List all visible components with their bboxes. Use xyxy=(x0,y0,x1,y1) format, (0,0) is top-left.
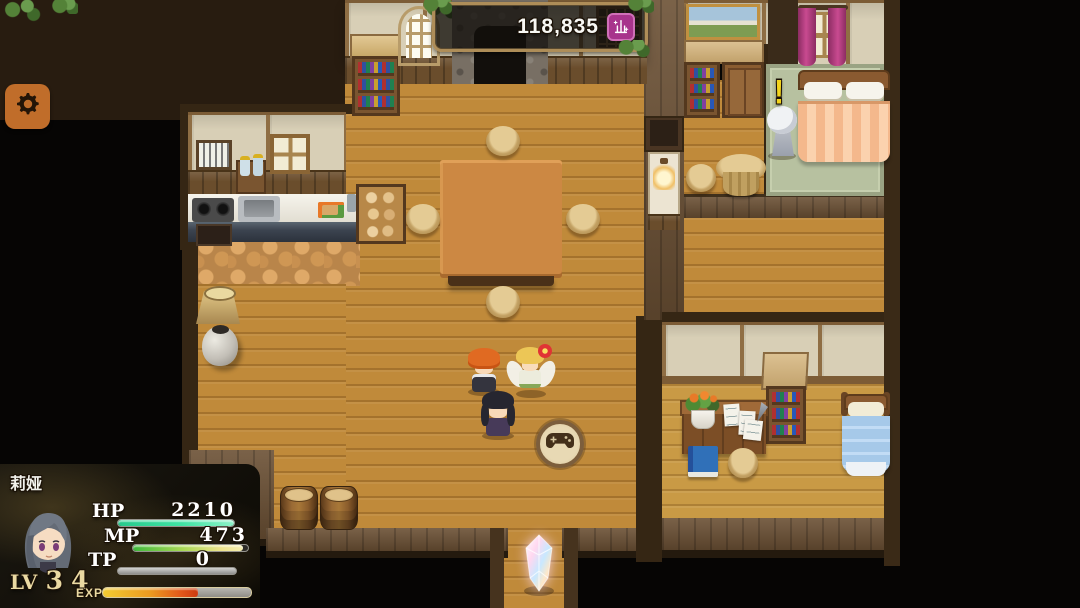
npc-alert-exclamation: ! xyxy=(774,73,784,112)
corridor-wall-right xyxy=(564,528,578,608)
currency-value: 118,835 xyxy=(517,15,599,39)
painting-landscape xyxy=(686,4,760,40)
bookshelf-topleft xyxy=(352,56,400,116)
ceramic-pot-mouth xyxy=(212,325,229,334)
jar xyxy=(240,156,250,176)
bar-leaf-decoration xyxy=(422,0,452,16)
gamepad-button[interactable] xyxy=(536,420,584,468)
bookshelf-living xyxy=(684,62,720,118)
fairy-flower xyxy=(538,344,552,358)
floor-right-mid xyxy=(684,216,884,316)
fairy-body xyxy=(519,370,541,388)
jar xyxy=(253,154,263,176)
corner-vine xyxy=(52,0,78,14)
lantern-icon xyxy=(653,162,675,190)
tp-bar xyxy=(117,567,237,575)
floor-left-border xyxy=(182,240,198,456)
wall-bottom-left xyxy=(266,528,508,558)
oven xyxy=(196,224,232,246)
wall-band-right-mid xyxy=(684,194,884,218)
corridor-wall-left xyxy=(490,528,504,608)
grain-sack-top xyxy=(204,286,236,301)
stove-burner xyxy=(216,202,230,216)
stool xyxy=(406,204,440,234)
barrel-top xyxy=(324,488,354,502)
bed2-pillow xyxy=(848,402,884,417)
guild-shop-icon xyxy=(607,13,635,41)
barrel xyxy=(280,486,318,530)
bookshelf-study xyxy=(766,386,806,444)
game-screen: ! xyxy=(0,0,1080,608)
desk-paper xyxy=(743,419,763,441)
flower-blooms xyxy=(688,390,718,406)
dining-table xyxy=(440,160,562,278)
curtain-right xyxy=(828,8,846,66)
round-table-skirt xyxy=(723,172,759,196)
bread-shelf xyxy=(356,184,406,244)
cutting-board xyxy=(318,202,344,218)
character-name: 莉娅 xyxy=(10,470,42,494)
character-portrait xyxy=(18,502,78,574)
corner-vine xyxy=(0,0,42,24)
gear-icon xyxy=(13,89,43,124)
kitchen-window xyxy=(270,134,310,174)
stool xyxy=(686,164,716,192)
bookshelf-top-slab xyxy=(350,34,400,58)
drying-rack xyxy=(196,140,232,170)
level-label: LV xyxy=(10,570,37,594)
flower-pot xyxy=(691,410,715,429)
mp-value: 473 xyxy=(130,524,248,546)
status-panel: 莉娅 HP 2210 MP 473 TP 0 xyxy=(0,464,260,608)
lamp-pillar-base xyxy=(648,214,680,230)
curtain-left xyxy=(798,8,816,66)
stool xyxy=(486,126,520,156)
blue-book xyxy=(688,446,718,477)
exp-bar xyxy=(102,587,252,598)
bar-leaf-decoration xyxy=(628,0,654,13)
lamp-pillar-cap-inner xyxy=(650,120,678,146)
exterior-dark-corner xyxy=(0,0,347,120)
settings-button[interactable] xyxy=(5,84,50,129)
npc-hair xyxy=(468,348,500,366)
bed-pillow xyxy=(804,82,842,99)
stool xyxy=(566,204,600,234)
wall-chute xyxy=(761,352,809,390)
exp-label: EXP xyxy=(76,586,103,600)
cabinet-door xyxy=(744,68,762,116)
bed2-sheet xyxy=(846,462,886,476)
stove-burner xyxy=(197,202,211,216)
border-main-right xyxy=(636,316,662,562)
bed-pillow xyxy=(846,82,884,99)
barrel-top xyxy=(284,488,314,502)
bedroom-doorway xyxy=(768,0,798,64)
stool xyxy=(486,286,520,318)
dining-table-legs xyxy=(448,276,554,286)
wainscot-kitchen xyxy=(188,170,346,196)
player-hair-lock xyxy=(481,404,489,426)
bed-blanket-orange xyxy=(798,101,890,162)
stool xyxy=(728,448,758,478)
sink-basin xyxy=(244,200,274,217)
player-hair-lock xyxy=(507,404,515,426)
hutch-band xyxy=(684,40,764,64)
barrel xyxy=(320,486,358,530)
npc-orange-hair[interactable] xyxy=(466,348,502,396)
exp-bar-fill xyxy=(103,588,198,597)
gamepad-icon xyxy=(545,429,575,460)
save-crystal[interactable] xyxy=(522,534,556,592)
lantern-cap xyxy=(660,158,668,164)
study-wall-trim-top xyxy=(662,312,884,322)
spice-bottle xyxy=(347,194,356,212)
player-character xyxy=(480,390,516,440)
hp-value: 2210 xyxy=(120,499,236,521)
wall-band-study-bottom xyxy=(662,518,884,558)
bar-leaf-decoration xyxy=(616,40,650,58)
cabinet xyxy=(722,62,764,118)
